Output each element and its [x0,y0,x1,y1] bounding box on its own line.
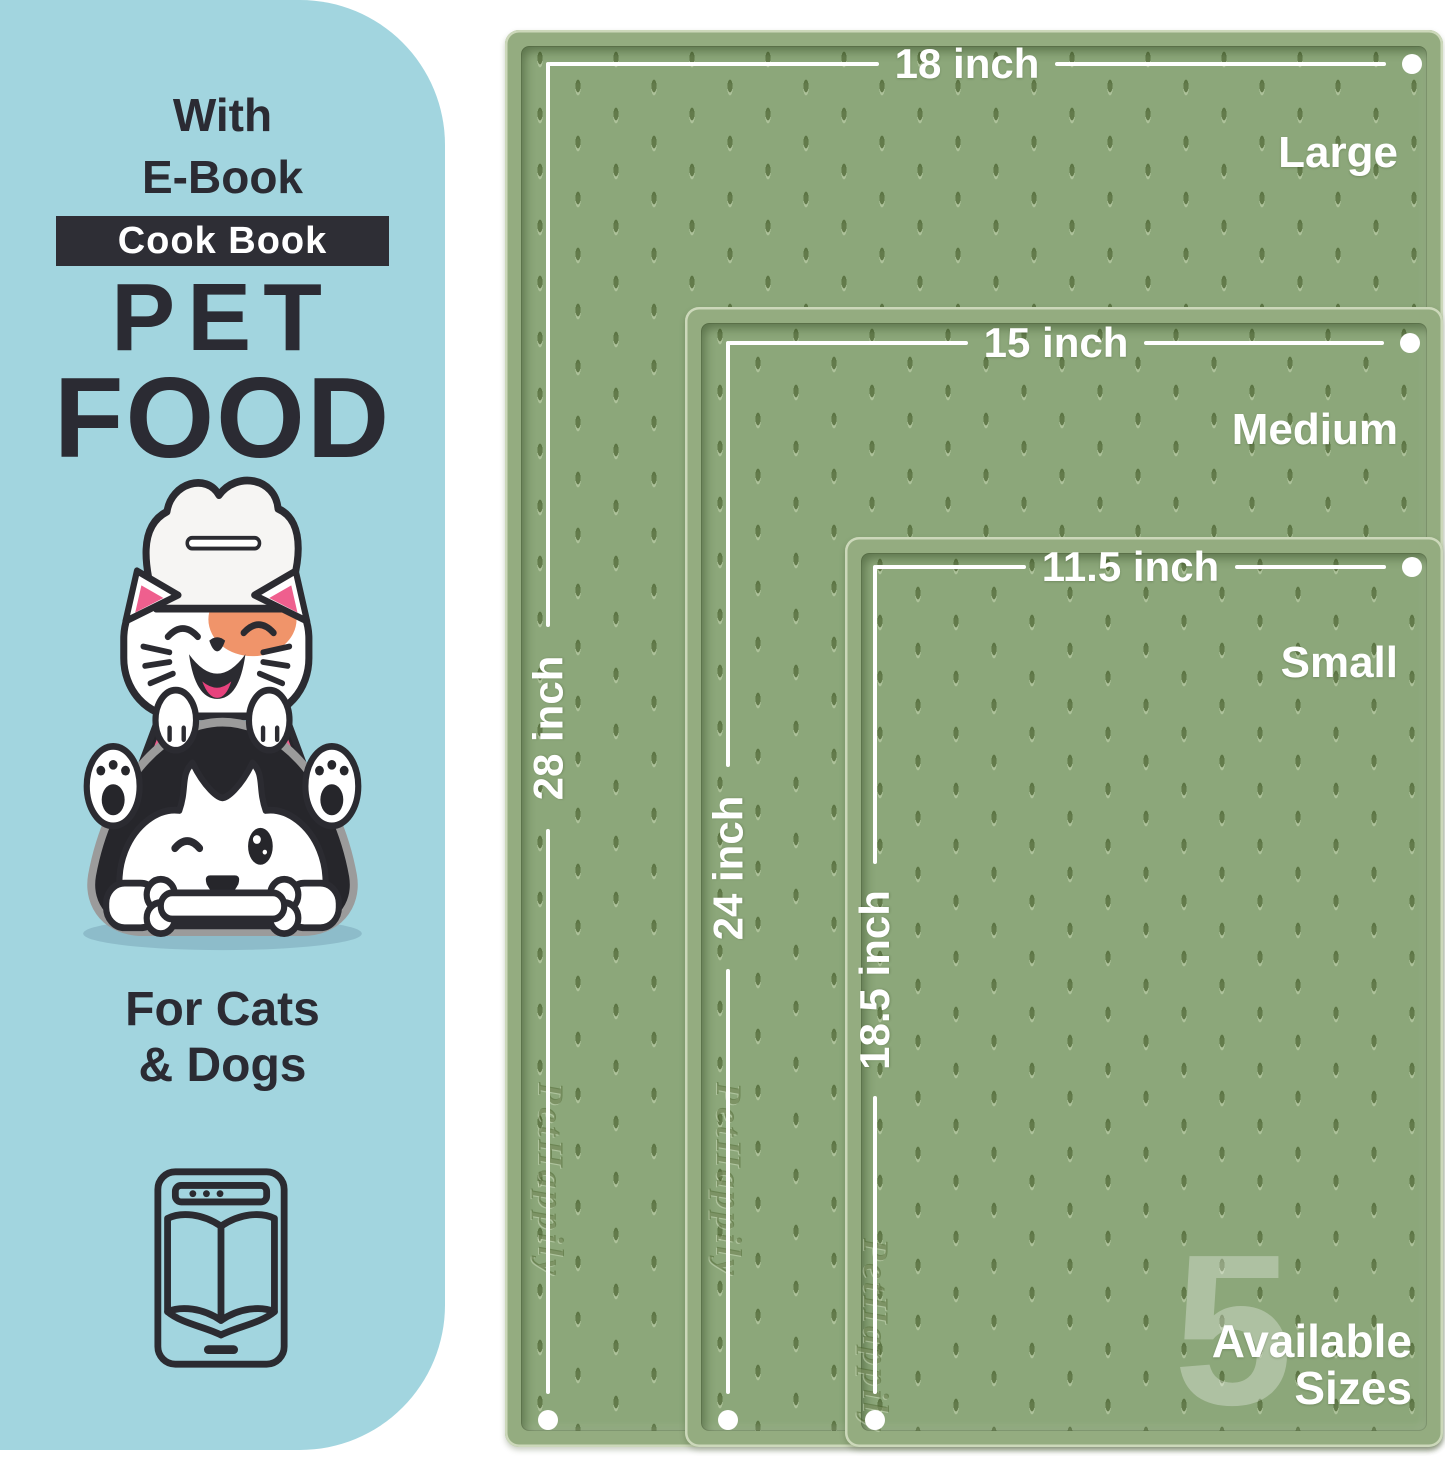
ebook-heading-line2: E-Book [0,146,445,208]
audience-line1: For Cats [0,982,445,1038]
dimension-height-medium-label-wrap: 24 inch [706,783,750,953]
dimension-width-small: 11.5 inch [875,547,1422,587]
dimension-endpoint-dot [1402,557,1422,577]
dimension-line [726,341,730,767]
dimension-width-small-label: 11.5 inch [1042,543,1219,591]
available-sizes-caption: Available Sizes [1212,1318,1412,1412]
audience-line2: & Dogs [0,1038,445,1094]
ebook-heading: With E-Book [0,84,445,208]
dimension-line [1235,565,1386,569]
dimension-width-medium-label: 15 inch [984,319,1129,367]
dimension-height-large: 28 inch [526,62,570,1430]
audience-text: For Cats & Dogs [0,982,445,1094]
dimension-line [1144,341,1384,345]
dimension-endpoint-dot [718,1410,738,1430]
dimension-line [873,565,877,864]
dimension-endpoint-dot [865,1410,885,1430]
dimension-line [873,1096,877,1395]
dimension-line [546,829,550,1394]
size-name-large: Large [1278,128,1398,178]
dimension-line [548,62,879,66]
promo-panel: With E-Book Cook Book PET FOOD [0,0,445,1450]
dimension-endpoint-dot [538,1410,558,1430]
ebook-heading-line1: With [0,84,445,146]
dimension-height-large-label: 28 inch [524,656,572,801]
available-sizes-line2: Sizes [1212,1365,1412,1412]
available-sizes-line1: Available [1212,1318,1412,1365]
dimension-height-small: 18.5 inch [853,565,897,1430]
dimension-line [546,62,550,627]
dimension-endpoint-dot [1400,333,1420,353]
dimension-endpoint-dot [1402,54,1422,74]
cookbook-badge-label: Cook Book [118,220,328,263]
dimension-height-medium-label: 24 inch [704,795,752,940]
dimension-height-medium: 24 inch [706,341,750,1430]
product-infographic: With E-Book Cook Book PET FOOD [0,0,1445,1462]
cat-chef-and-dog-illustration-icon [55,468,390,953]
dimension-height-small-label-wrap: 18.5 inch [853,880,897,1080]
title-pet: PET [0,268,445,368]
title-food: FOOD [0,360,445,478]
ebook-reader-icon [148,1166,294,1370]
dimension-line [728,341,968,345]
dimension-height-large-label-wrap: 28 inch [526,643,570,813]
dimension-width-large: 18 inch [548,44,1422,84]
cookbook-badge: Cook Book [56,216,389,266]
dimension-line [1055,62,1386,66]
dimension-line [726,969,730,1395]
size-name-small: Small [1281,638,1398,688]
size-name-medium: Medium [1232,405,1398,455]
dimension-width-medium: 15 inch [728,323,1420,363]
dimension-width-large-label: 18 inch [895,40,1040,88]
dimension-height-small-label: 18.5 inch [851,890,899,1070]
dimension-line [875,565,1026,569]
